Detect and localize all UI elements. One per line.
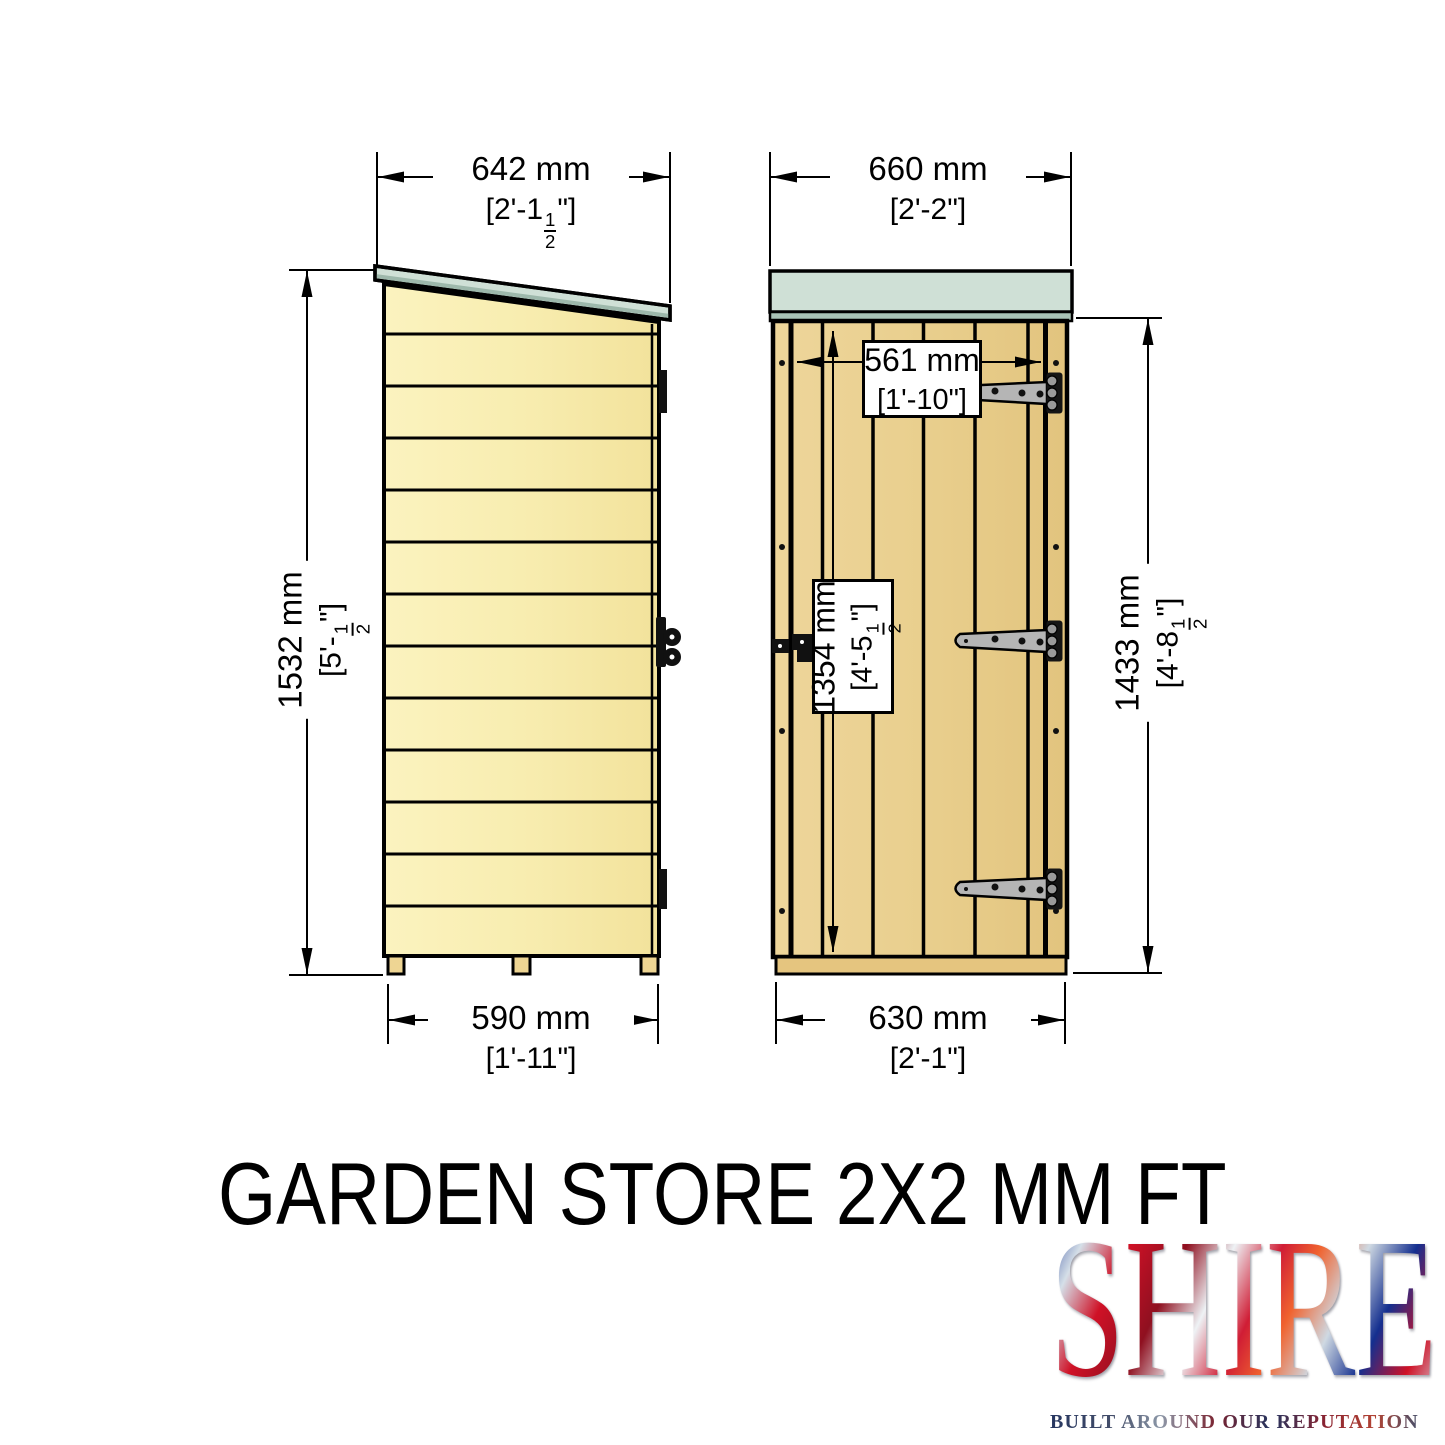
dimension-value-mm: 660 mm <box>838 147 1018 191</box>
dimension-value-mm: 1354 mm <box>802 580 844 713</box>
dimension-front-base-width: 630 mm [2'-1"] <box>825 996 1031 1078</box>
dimension-side-roof-width: 642 mm [2'-112"] <box>433 147 629 252</box>
dimension-value-mm: 590 mm <box>436 996 626 1040</box>
dimension-side-base-width: 590 mm [1'-11"] <box>428 996 634 1078</box>
dimension-value-imperial: [4'-812"] <box>1149 574 1210 712</box>
side-elevation <box>375 266 681 974</box>
dimension-value-mm: 561 mm <box>864 339 980 381</box>
front-roof <box>770 271 1072 312</box>
shire-logo-wordmark: SHIRE <box>1050 1209 1437 1409</box>
dimension-value-mm: 1532 mm <box>269 571 313 709</box>
side-hinge-stub-bottom <box>659 869 667 909</box>
dimension-value-imperial: [4'-512"] <box>845 580 904 713</box>
dimension-value-imperial: [1'-10"] <box>864 382 980 419</box>
dimension-front-roof-width: 660 mm [2'-2"] <box>830 147 1026 229</box>
dimension-value-imperial: [2'-2"] <box>838 191 1018 229</box>
technical-drawing-page: 642 mm [2'-112"] 660 mm [2'-2"] 1532 mm … <box>0 0 1445 1445</box>
shire-logo: SHIRE BUILT AROUND OUR REPUTATION <box>1050 1209 1445 1434</box>
dimension-value-mm: 642 mm <box>441 147 621 191</box>
dimension-value-imperial: [2'-112"] <box>441 191 621 252</box>
dimension-door-width: 561 mm [1'-10"] <box>862 340 982 418</box>
dimension-value-mm: 630 mm <box>833 996 1023 1040</box>
side-door-knob <box>656 617 681 667</box>
side-hinge-stub-top <box>659 370 667 413</box>
dimension-value-mm: 1433 mm <box>1106 574 1150 712</box>
side-feet <box>388 956 658 974</box>
dimension-value-imperial: [1'-11"] <box>436 1040 626 1078</box>
dimension-value-imperial: [2'-1"] <box>833 1040 1023 1078</box>
dimension-door-height: 1354 mm [4'-512"] <box>812 579 894 714</box>
front-base <box>776 957 1066 974</box>
dimension-value-imperial: [5'-12"] <box>312 571 373 709</box>
